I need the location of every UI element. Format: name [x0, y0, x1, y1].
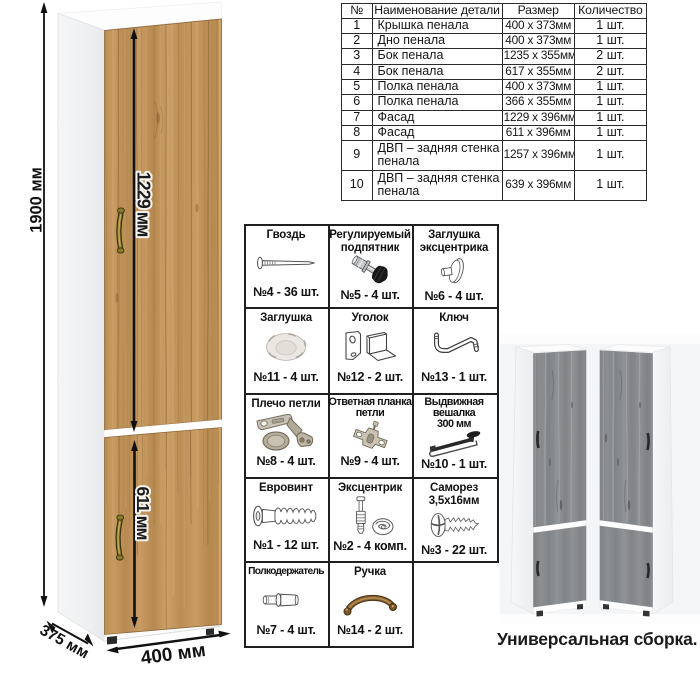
svg-text:611 мм: 611 мм: [133, 487, 153, 540]
svg-text:1229 мм: 1229 мм: [134, 172, 154, 237]
svg-text:1900 мм: 1900 мм: [28, 167, 46, 233]
